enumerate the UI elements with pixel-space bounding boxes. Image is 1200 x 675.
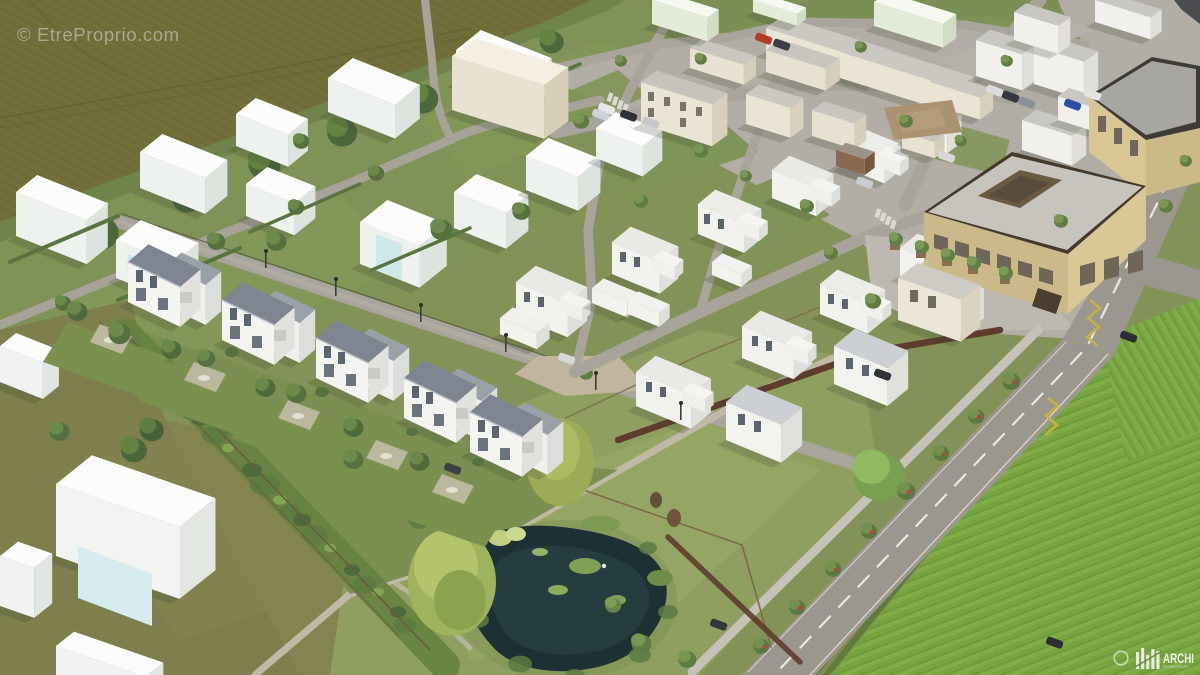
- svg-text:PROMOTEURS: PROMOTEURS: [1163, 665, 1189, 669]
- svg-text:© EtreProprio.com: © EtreProprio.com: [17, 24, 180, 45]
- svg-text:ARCHI: ARCHI: [1163, 651, 1194, 666]
